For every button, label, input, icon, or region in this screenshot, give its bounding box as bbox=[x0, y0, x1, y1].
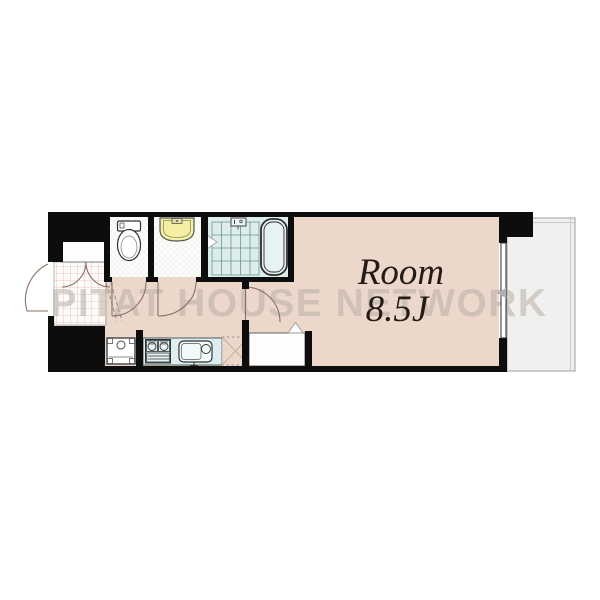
shoe-closet bbox=[62, 240, 110, 262]
wall-segment bbox=[104, 242, 110, 282]
room-label: Room bbox=[357, 252, 444, 293]
kitchen bbox=[107, 337, 249, 366]
gas-stove-icon bbox=[146, 340, 171, 364]
wall-segment bbox=[146, 277, 158, 282]
floorplan-canvas: PITAT HOUSE NETWORK bbox=[0, 0, 600, 600]
wall-segment bbox=[48, 212, 63, 262]
wall-segment bbox=[242, 320, 249, 372]
toilet-icon bbox=[118, 221, 141, 261]
wall-segment bbox=[288, 217, 294, 282]
wall-segment bbox=[201, 217, 208, 282]
kitchen-sink-icon bbox=[179, 341, 212, 366]
watermark-text: PITAT HOUSE NETWORK bbox=[50, 282, 547, 325]
room-size-label: 8.5J bbox=[366, 289, 430, 330]
wall-segment bbox=[148, 217, 154, 282]
entrance-door-arc bbox=[25, 264, 48, 311]
wall-segment bbox=[48, 326, 105, 372]
wall-segment bbox=[104, 277, 112, 282]
wall-segment bbox=[48, 212, 501, 217]
wall-segment bbox=[48, 366, 507, 372]
floorplan-svg: PITAT HOUSE NETWORK bbox=[0, 0, 600, 600]
wall-segment bbox=[242, 277, 249, 289]
toilet-room bbox=[110, 217, 148, 277]
washbasin-icon bbox=[160, 218, 194, 241]
bathroom bbox=[207, 217, 288, 277]
bathtub-icon bbox=[261, 219, 287, 275]
wall-segment bbox=[136, 330, 143, 366]
wall-segment bbox=[305, 331, 312, 372]
washing-machine-space bbox=[107, 338, 135, 364]
wall-segment bbox=[499, 338, 507, 372]
washroom bbox=[154, 217, 201, 277]
wall-segment bbox=[499, 212, 533, 237]
